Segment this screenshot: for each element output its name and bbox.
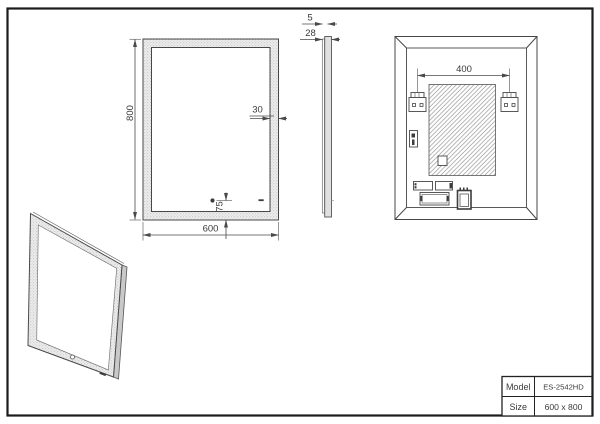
mirror-technical-drawing: 800 600 30 75 5 — [0, 0, 600, 424]
mounting-bracket-right — [501, 93, 518, 112]
side-frame-edge — [325, 37, 332, 218]
dim-label-bracket-spacing: 400 — [456, 64, 472, 75]
dim-label-depth: 28 — [305, 28, 316, 39]
model-value: ES-2542HD — [543, 383, 584, 392]
dim-label-frame: 30 — [252, 105, 263, 116]
junction-box — [458, 188, 472, 210]
led-driver-small-left — [414, 182, 433, 191]
front-view: 800 600 30 75 — [125, 39, 287, 241]
dim-label-sensor-offset: 75 — [215, 201, 226, 212]
brand-logo — [259, 199, 264, 201]
mounting-bracket-left — [409, 93, 426, 112]
dim-label-height: 800 — [125, 105, 136, 121]
size-label: Size — [509, 402, 527, 412]
back-view: 400 — [395, 37, 537, 220]
power-switch — [410, 131, 418, 148]
size-value: 600 x 800 — [545, 402, 583, 412]
model-label: Model — [506, 382, 531, 392]
led-driver-large — [420, 193, 449, 206]
perspective-sensor-dot — [71, 355, 75, 359]
dim-label-glass: 5 — [307, 13, 312, 24]
led-driver-small-right — [436, 182, 453, 191]
title-block: Model ES-2542HD Size 600 x 800 — [502, 377, 592, 417]
front-glass — [152, 48, 271, 212]
back-panel-cutout — [438, 156, 447, 166]
dim-label-width: 600 — [203, 224, 219, 235]
